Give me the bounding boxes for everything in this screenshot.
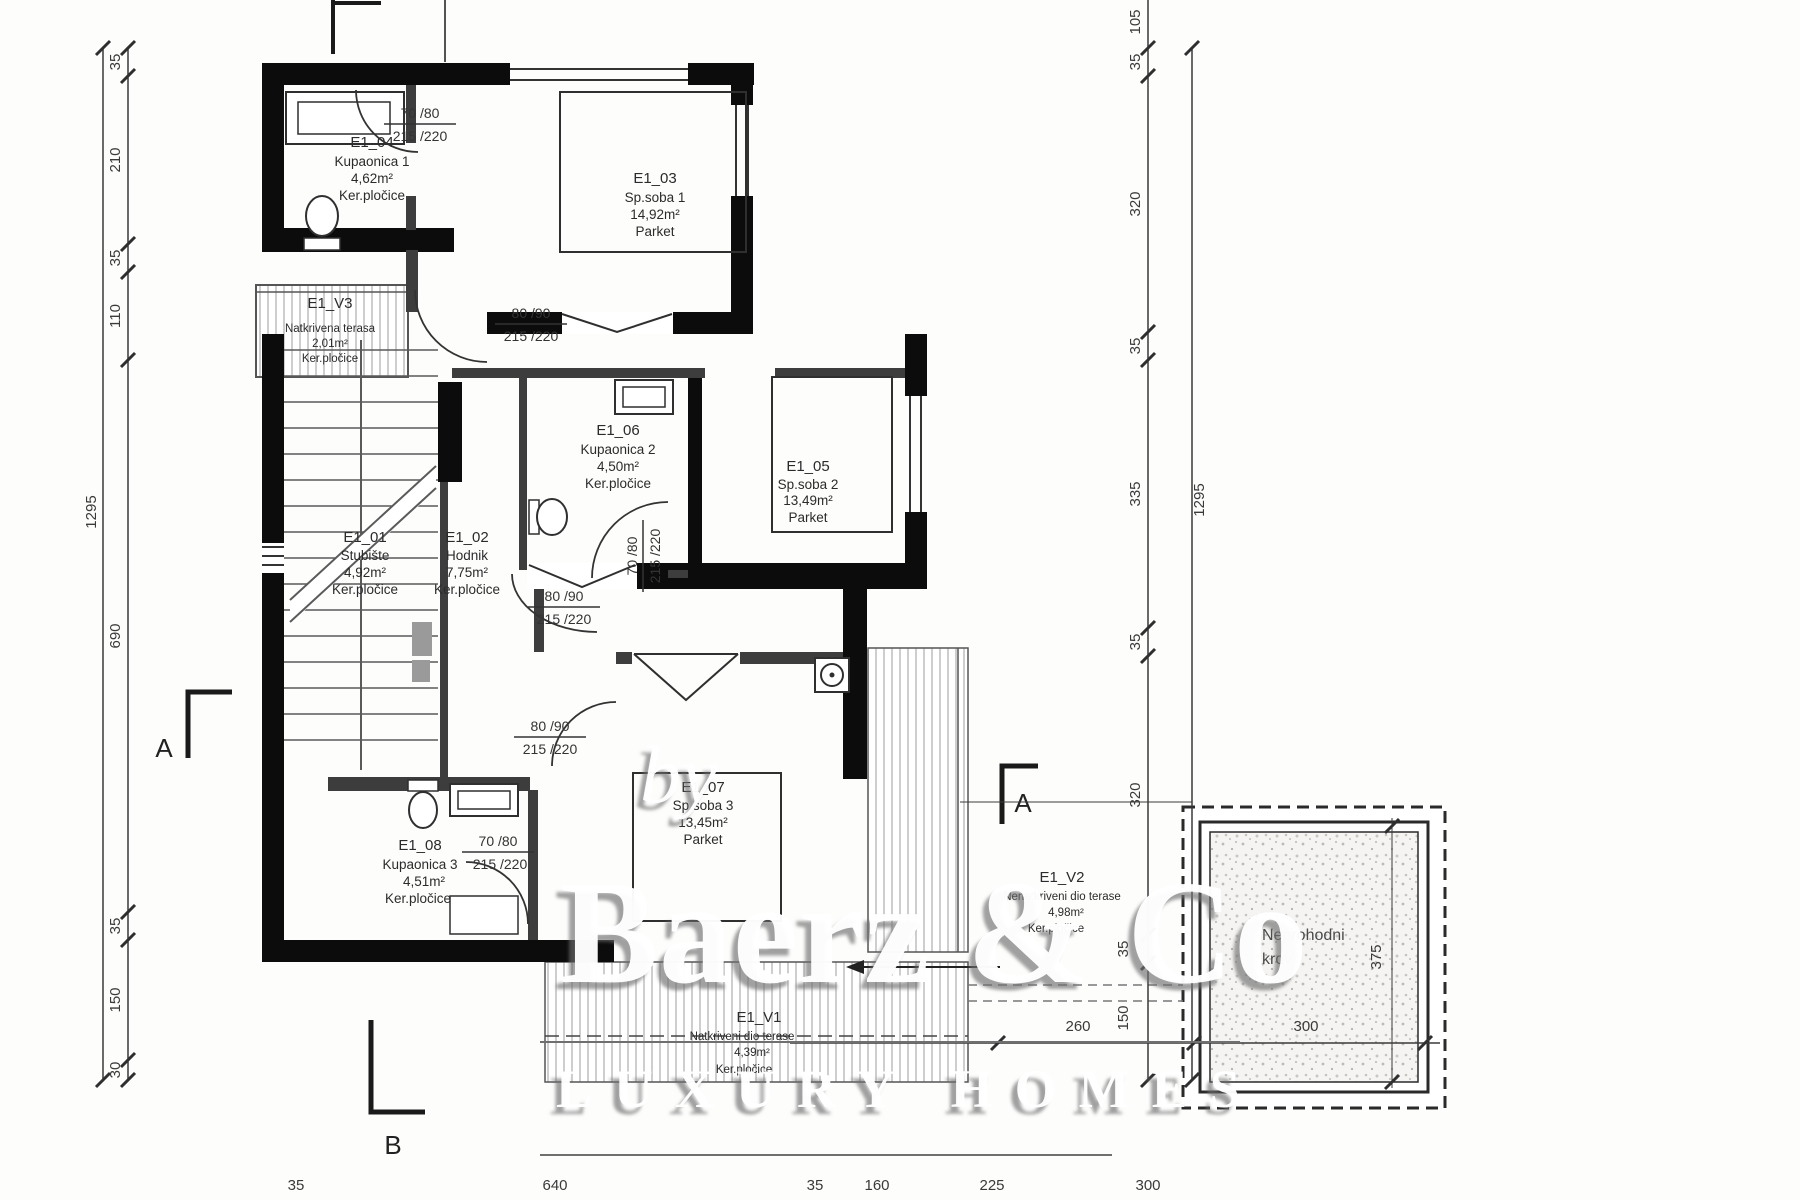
dim-left-total: 1295 <box>83 495 100 528</box>
fixtures <box>286 92 849 934</box>
svg-text:E1_06: E1_06 <box>596 422 639 439</box>
svg-text:Kupaonica 1: Kupaonica 1 <box>334 154 409 169</box>
dim-roof-375: 375 <box>1368 944 1385 969</box>
svg-text:Parket: Parket <box>683 832 722 847</box>
svg-text:80 /90: 80 /90 <box>545 588 584 604</box>
dim-roof-300: 300 <box>1293 1018 1318 1035</box>
svg-text:215 /220: 215 /220 <box>473 856 528 872</box>
svg-text:Ker.pločice: Ker.pločice <box>434 582 500 597</box>
svg-text:Hodnik: Hodnik <box>446 548 488 563</box>
svg-text:Sp.soba 1: Sp.soba 1 <box>625 190 686 205</box>
section-a-right-label: A <box>1014 788 1032 818</box>
svg-text:Stubište: Stubište <box>341 548 390 563</box>
dim-left-3: 110 <box>107 304 124 328</box>
dim-right-1: 320 <box>1127 191 1144 216</box>
svg-text:70 /80: 70 /80 <box>479 833 518 849</box>
dim-bottom-1: 640 <box>542 1177 567 1194</box>
dim-bottom-2: 35 <box>807 1177 824 1194</box>
dim-right-4: 35 <box>1127 634 1144 651</box>
svg-text:4,92m²: 4,92m² <box>344 565 387 580</box>
dim-terrace-260: 260 <box>1065 1018 1090 1035</box>
watermark-by: by <box>640 728 717 822</box>
dim-left-1: 210 <box>107 147 124 172</box>
svg-text:215 /220: 215 /220 <box>647 529 663 584</box>
svg-text:Parket: Parket <box>635 224 674 239</box>
dim-left-4: 690 <box>107 623 124 648</box>
svg-text:7,75m²: 7,75m² <box>446 565 489 580</box>
door-label-2: 80 /90 215 /220 <box>495 305 567 344</box>
svg-text:215 /220: 215 /220 <box>537 611 592 627</box>
dim-bottom-3: 160 <box>864 1177 889 1194</box>
dim-right-5: 320 <box>1127 782 1144 807</box>
room-label-e1-05: E1_05 Sp.soba 2 13,49m² Parket <box>778 458 839 525</box>
svg-text:13,49m²: 13,49m² <box>783 493 833 508</box>
svg-text:E1_01: E1_01 <box>343 529 386 546</box>
room-label-e1-08: E1_08 Kupaonica 3 4,51m² Ker.pločice <box>382 837 457 906</box>
room-label-e1-06: E1_06 Kupaonica 2 4,50m² Ker.pločice <box>580 422 655 491</box>
dim-right-2: 35 <box>1127 338 1144 355</box>
svg-text:80 /90: 80 /90 <box>512 305 551 321</box>
svg-text:80 /90: 80 /90 <box>531 718 570 734</box>
svg-text:Parket: Parket <box>788 510 827 525</box>
svg-text:2,01m²: 2,01m² <box>312 338 348 350</box>
radiators <box>412 622 432 682</box>
svg-text:4,62m²: 4,62m² <box>351 171 394 186</box>
dim-left-6: 150 <box>107 987 124 1012</box>
watermark-rule-top <box>540 1041 1240 1043</box>
svg-text:215 /220: 215 /220 <box>504 328 559 344</box>
svg-text:Kupaonica 2: Kupaonica 2 <box>580 442 655 457</box>
dim-right-3: 335 <box>1127 481 1144 506</box>
section-a-left-label: A <box>155 733 173 763</box>
svg-text:Ker.pločice: Ker.pločice <box>302 353 358 365</box>
door-label-5: 80 /90 215 /220 <box>514 718 586 757</box>
dim-right-top: 105 <box>1127 9 1144 34</box>
dim-left-2: 35 <box>107 250 124 267</box>
svg-text:Sp.soba 2: Sp.soba 2 <box>778 477 839 492</box>
watermark-rule-bottom <box>540 1154 1112 1156</box>
svg-text:E1_05: E1_05 <box>786 458 829 475</box>
dim-bottom-0: 35 <box>288 1177 305 1194</box>
room-label-e1-03: E1_03 Sp.soba 1 14,92m² Parket <box>625 170 686 239</box>
svg-text:70 /80: 70 /80 <box>401 105 440 121</box>
floor-plan-drawing: Neprohodni krov <box>0 0 1800 1200</box>
section-b-label: B <box>384 1130 401 1160</box>
watermark-tagline: LUXURY HOMES <box>556 1058 1262 1120</box>
dim-bottom-5: 300 <box>1135 1177 1160 1194</box>
furniture <box>560 92 892 921</box>
svg-text:Ker.pločice: Ker.pločice <box>332 582 398 597</box>
svg-text:Ker.pločice: Ker.pločice <box>339 188 405 203</box>
dim-left-7: 30 <box>107 1062 124 1079</box>
dim-bottom-4: 225 <box>979 1177 1004 1194</box>
svg-text:215 /220: 215 /220 <box>523 741 578 757</box>
svg-text:4,50m²: 4,50m² <box>597 459 640 474</box>
svg-text:14,92m²: 14,92m² <box>630 207 680 222</box>
svg-text:Natkrivena terasa: Natkrivena terasa <box>285 323 376 335</box>
svg-text:Kupaonica 3: Kupaonica 3 <box>382 857 457 872</box>
svg-text:4,51m²: 4,51m² <box>403 874 446 889</box>
svg-text:Ker.pločice: Ker.pločice <box>585 476 651 491</box>
watermark-brand: Baerz & Co <box>560 848 1308 1018</box>
dim-right-0: 35 <box>1127 54 1144 71</box>
svg-text:E1_03: E1_03 <box>633 170 676 187</box>
svg-text:Ker.pločice: Ker.pločice <box>385 891 451 906</box>
svg-text:E1_04: E1_04 <box>350 134 393 151</box>
door-label-6: 70 /80 215 /220 <box>462 833 534 872</box>
svg-text:E1_V3: E1_V3 <box>307 295 352 312</box>
dim-left-0: 35 <box>107 54 124 71</box>
svg-text:E1_08: E1_08 <box>398 837 441 854</box>
floor-plan-page: Neprohodni krov <box>0 0 1800 1200</box>
dim-left-5: 35 <box>107 918 124 935</box>
svg-text:215 /220: 215 /220 <box>393 128 448 144</box>
svg-text:70 /80: 70 /80 <box>624 536 640 575</box>
svg-text:E1_02: E1_02 <box>445 529 488 546</box>
dim-right-total: 1295 <box>1191 483 1208 516</box>
